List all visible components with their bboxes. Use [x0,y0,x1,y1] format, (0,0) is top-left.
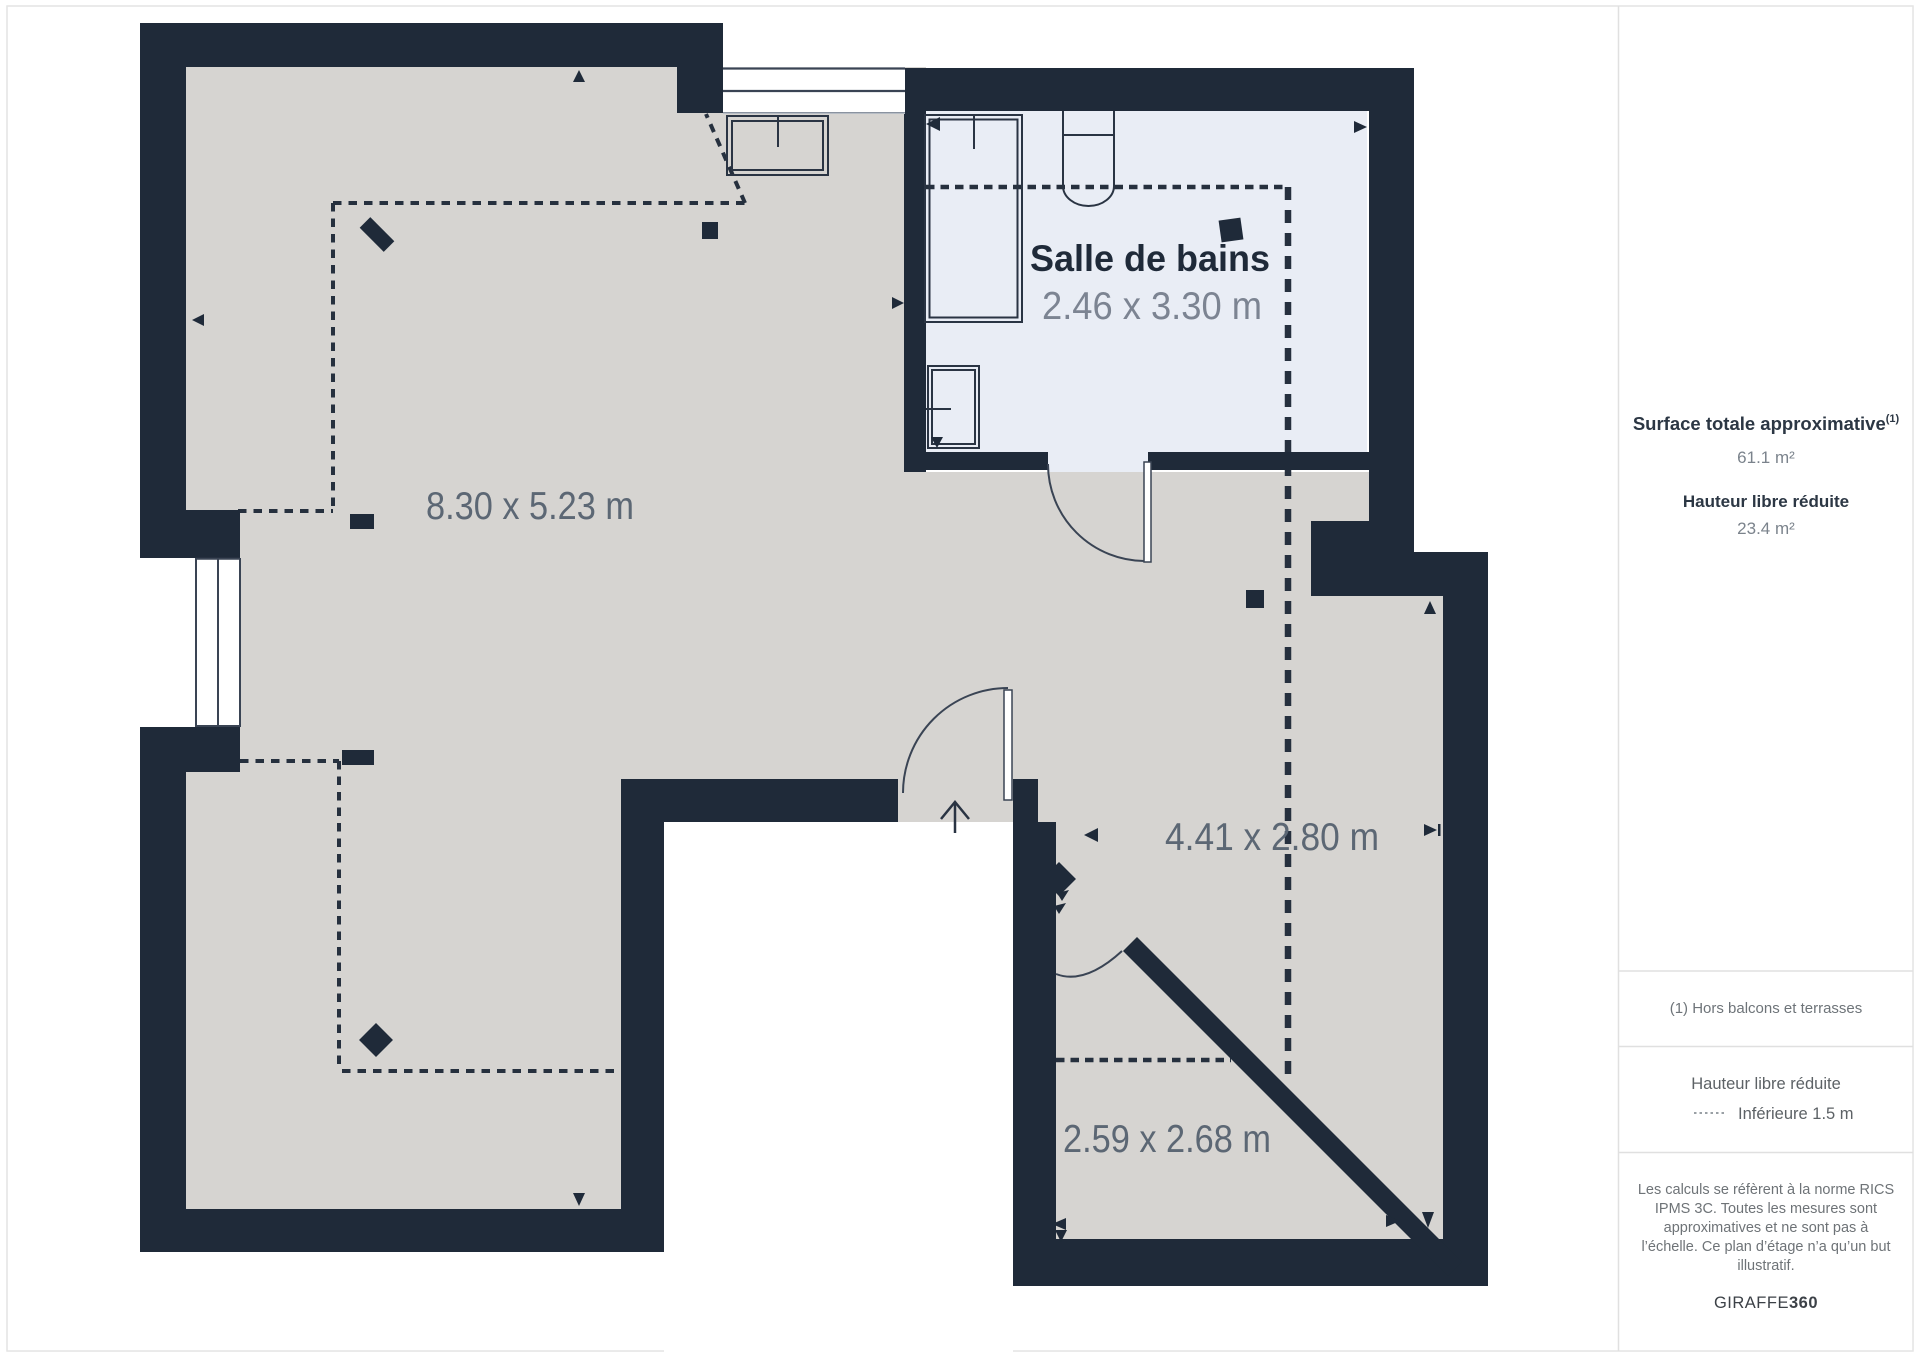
svg-text:approximatives et ne sont pas: approximatives et ne sont pas à [1664,1220,1870,1236]
svg-text:2.59 x 2.68 m: 2.59 x 2.68 m [1063,1118,1271,1161]
svg-text:4.41 x 2.80 m: 4.41 x 2.80 m [1165,816,1379,859]
svg-text:2.46 x 3.30 m: 2.46 x 3.30 m [1042,285,1262,328]
svg-text:GIRAFFE360: GIRAFFE360 [1714,1294,1818,1312]
svg-text:Hauteur libre réduite: Hauteur libre réduite [1691,1075,1841,1093]
svg-text:Surface totale approximative(1: Surface totale approximative(1) [1633,413,1900,434]
svg-text:23.4 m²: 23.4 m² [1737,519,1795,538]
svg-text:Inférieure 1.5 m: Inférieure 1.5 m [1738,1105,1854,1123]
svg-text:illustratif.: illustratif. [1737,1258,1794,1274]
svg-text:8.30 x 5.23 m: 8.30 x 5.23 m [426,485,634,528]
svg-text:IPMS 3C. Toutes les mesures so: IPMS 3C. Toutes les mesures sont [1655,1201,1877,1217]
svg-text:61.1 m²: 61.1 m² [1737,448,1795,467]
svg-text:(1) Hors balcons et terrasses: (1) Hors balcons et terrasses [1670,1000,1863,1017]
svg-text:Hauteur libre réduite: Hauteur libre réduite [1683,492,1849,511]
svg-text:Les calculs se réfèrent à la n: Les calculs se réfèrent à la norme RICS [1638,1182,1894,1198]
svg-text:Salle de bains: Salle de bains [1030,238,1270,279]
svg-text:l’échelle. Ce plan d’étage n’a: l’échelle. Ce plan d’étage n’a qu’un but [1641,1239,1890,1255]
